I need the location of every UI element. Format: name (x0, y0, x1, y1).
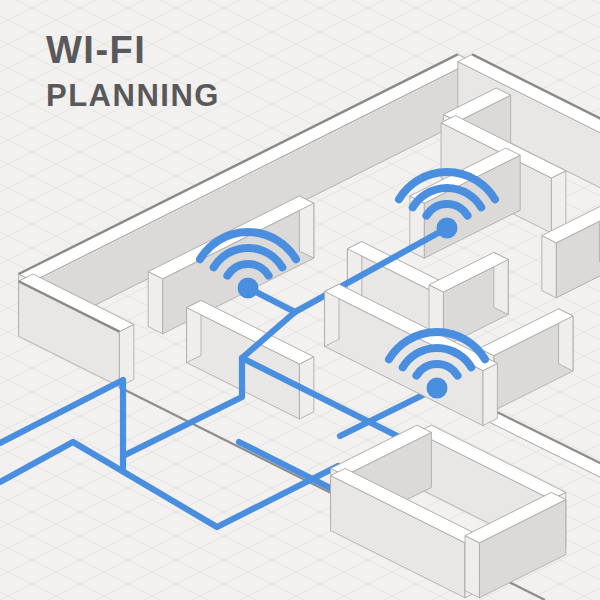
wall-end-cap (551, 171, 565, 233)
wifi-dot (238, 278, 259, 299)
wall-end-cap (148, 272, 162, 334)
wifi-planning-illustration: WI-FI PLANNING (0, 0, 600, 600)
wifi-dot (427, 378, 448, 399)
wifi-dot (437, 218, 458, 239)
wall-end-cap (465, 536, 479, 598)
scene-svg (0, 0, 600, 600)
wall-end-cap (542, 236, 556, 298)
wall-end-cap (483, 363, 497, 425)
